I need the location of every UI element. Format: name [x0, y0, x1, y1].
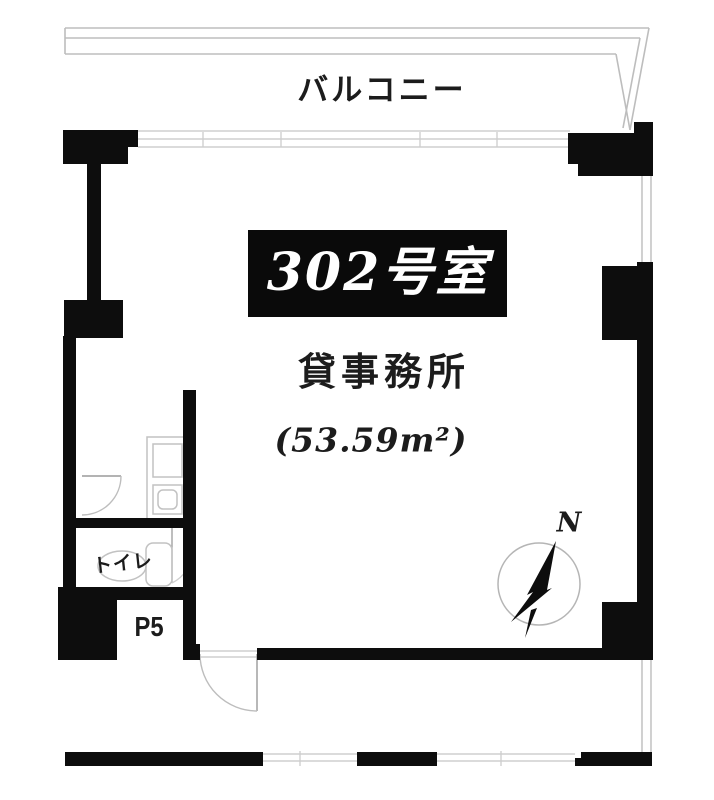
balcony-label: バルコニー [297, 76, 466, 107]
kitchenette-fixture [147, 437, 188, 520]
room-number-label: 302号室 [267, 247, 490, 299]
compass-icon [498, 541, 580, 638]
floor-plan-drawing [0, 0, 714, 800]
corridor-window-band [198, 651, 575, 766]
pipe-space-label: P5 [134, 613, 163, 641]
room-area-label: (53.59m²) [275, 424, 468, 457]
balcony-window-band [138, 131, 570, 147]
floor-plan-page: バルコニー 302号室 貸事務所 (53.59m²) トイレ P5 N [0, 0, 714, 800]
room-use-label: 貸事務所 [298, 353, 470, 391]
service-hall-door [82, 476, 121, 515]
entrance-door [200, 654, 257, 711]
compass-north-label: N [557, 510, 582, 537]
